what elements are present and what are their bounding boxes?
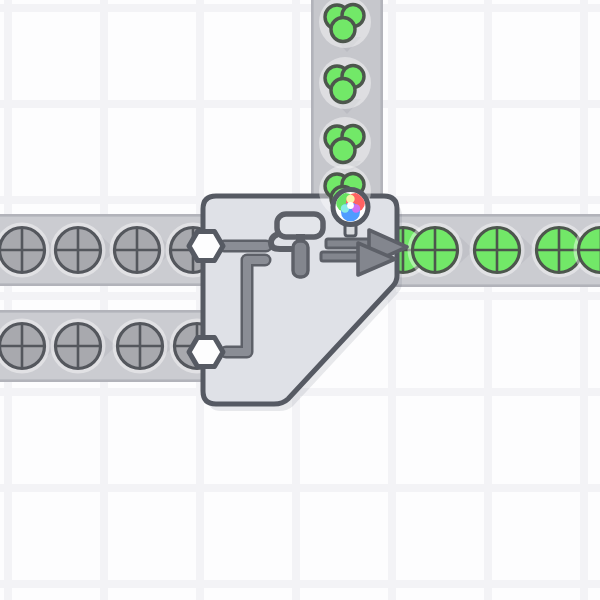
shape-item-circle — [51, 319, 106, 374]
belt-shapes-top-left[interactable] — [0, 214, 221, 286]
shape-item-circle — [110, 223, 165, 278]
shape-item-circle — [51, 223, 106, 278]
shape-item-circle — [113, 319, 168, 374]
belt-output-right[interactable] — [376, 214, 600, 287]
color-item-green — [319, 57, 371, 109]
shape-item-circle — [408, 223, 463, 278]
hexagon-input-icon-top — [189, 232, 223, 261]
factory-scene[interactable] — [0, 0, 600, 600]
game-viewport[interactable] — [0, 0, 600, 600]
shape-item-circle — [470, 223, 525, 278]
color-item-green — [319, 117, 371, 169]
double-painter-building[interactable] — [203, 196, 407, 411]
hexagon-input-icon-bottom — [189, 338, 223, 367]
